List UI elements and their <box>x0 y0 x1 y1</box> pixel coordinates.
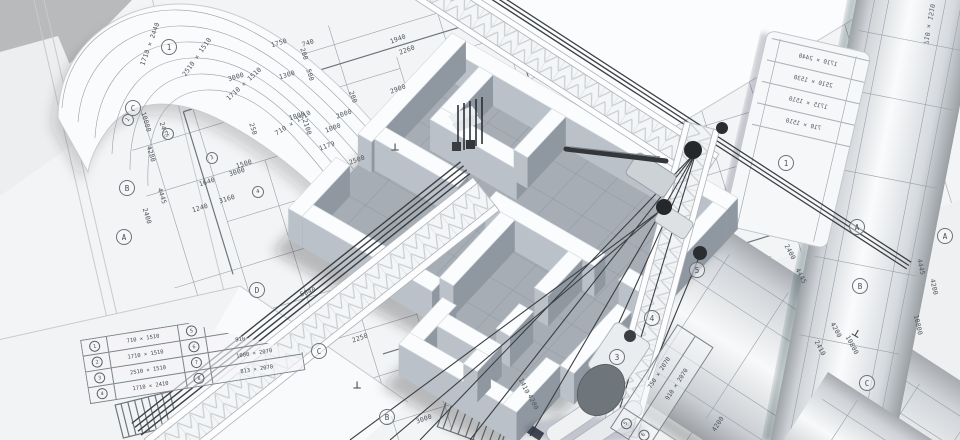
grid-bubble: C <box>859 375 875 391</box>
item-number: 1 <box>88 340 101 353</box>
item-number: 2 <box>91 356 104 369</box>
item-number: 8 <box>193 372 206 385</box>
item-number: 4 <box>96 387 109 400</box>
roll-band-label: 1715 × 1510 <box>788 95 828 111</box>
photo-canvas: 1000024104280444524002100250200500175074… <box>0 0 960 440</box>
grid-bubble: 5 <box>689 262 705 278</box>
datum-mark: ⊥ <box>390 143 399 154</box>
grid-bubble: 4 <box>644 310 660 326</box>
grid-bubble: D <box>249 282 265 298</box>
roll-band-label: 2510 × 1530 <box>793 74 833 90</box>
grid-bubble: B <box>379 409 395 425</box>
grid-bubble: C <box>311 343 327 359</box>
grid-bubble: A <box>937 228 953 244</box>
item-number: 6 <box>188 340 201 353</box>
grid-bubble: 3 <box>609 349 625 365</box>
item-number: 7 <box>190 356 203 369</box>
roll-band-label: 710 × 1510 <box>785 117 822 132</box>
grid-bubble: 1 <box>778 155 794 171</box>
roll-band-label: 1710 × 2440 <box>798 53 838 69</box>
grid-bubble: A <box>849 219 865 235</box>
item-number: 5 <box>185 325 198 338</box>
grid-bubble: B <box>119 180 135 196</box>
item-number: 5 <box>618 416 633 431</box>
grid-bubble: A <box>116 229 132 245</box>
grid-bubble: B <box>852 278 868 294</box>
grid-bubble: 1 <box>161 39 177 55</box>
item-number: 6 <box>636 427 651 440</box>
datum-mark: ⊥ <box>352 381 361 392</box>
item-number: 3 <box>93 372 106 385</box>
